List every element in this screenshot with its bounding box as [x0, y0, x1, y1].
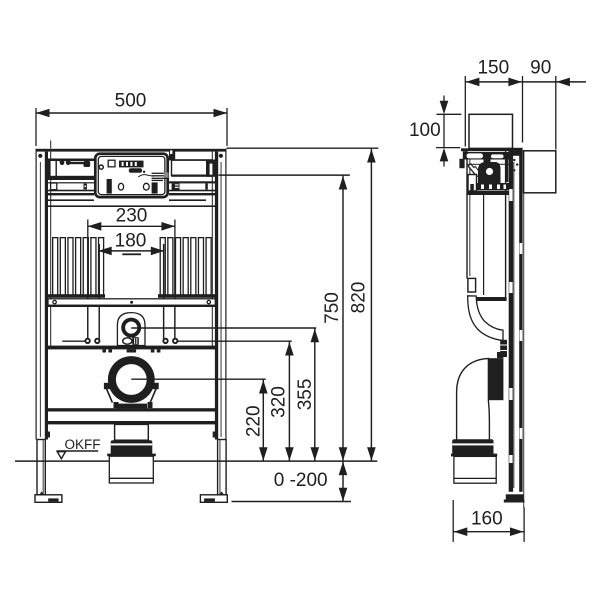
svg-text:500: 500 — [115, 90, 147, 111]
svg-text:100: 100 — [409, 120, 441, 141]
svg-text:820: 820 — [349, 282, 370, 314]
svg-text:160: 160 — [471, 509, 503, 530]
svg-text:750: 750 — [322, 292, 343, 324]
svg-text:230: 230 — [116, 206, 148, 227]
svg-text:0 -200: 0 -200 — [274, 470, 328, 491]
svg-text:150: 150 — [477, 58, 509, 79]
svg-text:OKFF: OKFF — [65, 437, 101, 452]
svg-text:90: 90 — [530, 58, 551, 79]
svg-text:220: 220 — [243, 405, 264, 437]
svg-text:355: 355 — [295, 379, 316, 411]
svg-text:180: 180 — [115, 230, 147, 251]
svg-text:320: 320 — [269, 386, 290, 418]
